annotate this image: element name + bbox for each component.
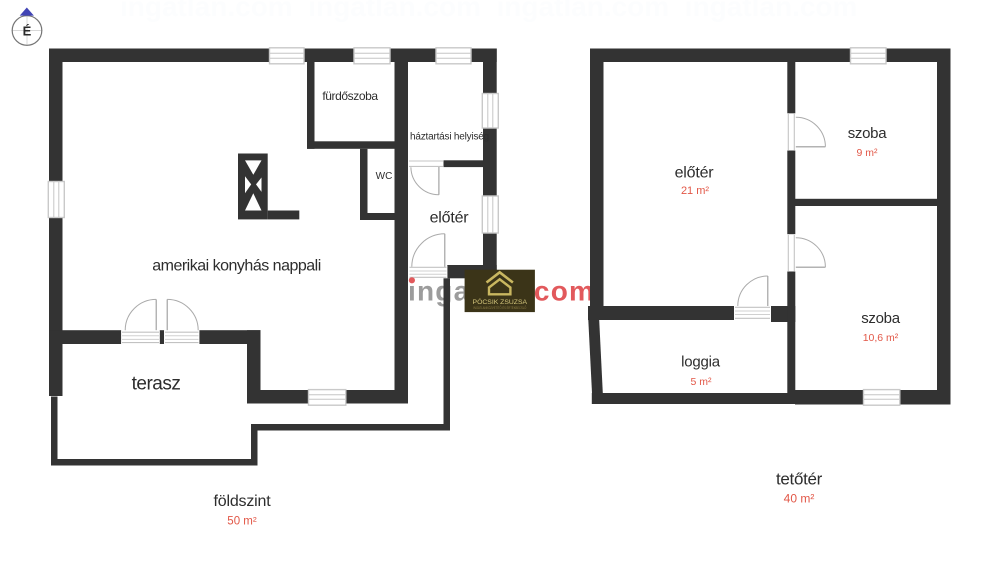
svg-text:szoba: szoba	[861, 310, 900, 327]
svg-text:terasz: terasz	[132, 374, 181, 395]
svg-text:földszint: földszint	[214, 493, 272, 510]
svg-text:É: É	[23, 24, 32, 39]
svg-text:WC: WC	[376, 171, 393, 182]
svg-text:10,6 m²: 10,6 m²	[863, 332, 899, 344]
svg-text:loggia: loggia	[681, 354, 721, 371]
svg-text:9 m²: 9 m²	[857, 147, 879, 159]
svg-text:40 m²: 40 m²	[784, 492, 815, 506]
svg-text:tetőtér: tetőtér	[776, 470, 823, 489]
svg-text:szoba: szoba	[848, 125, 887, 142]
svg-text:INGATLANKÖZVETÍTŐ ÉS ÉRTÉKBECS: INGATLANKÖZVETÍTŐ ÉS ÉRTÉKBECSLŐ	[473, 305, 526, 310]
svg-text:előtér: előtér	[430, 210, 470, 227]
svg-text:5 m²: 5 m²	[691, 376, 713, 388]
svg-text:háztartási helyiség: háztartási helyiség	[410, 132, 489, 143]
svg-text:PÓCSIK ZSUZSA: PÓCSIK ZSUZSA	[473, 297, 528, 306]
svg-text:50 m²: 50 m²	[227, 516, 257, 528]
svg-text:21 m²: 21 m²	[681, 185, 709, 197]
svg-text:fürdőszoba: fürdőszoba	[322, 89, 378, 103]
svg-text:amerikai konyhás nappali: amerikai konyhás nappali	[152, 258, 321, 275]
svg-text:előtér: előtér	[675, 165, 715, 182]
svg-text:ingatlan.com ingatlan.com in: ingatlan.com ingatlan.com ingatlan.com i…	[120, 0, 857, 22]
